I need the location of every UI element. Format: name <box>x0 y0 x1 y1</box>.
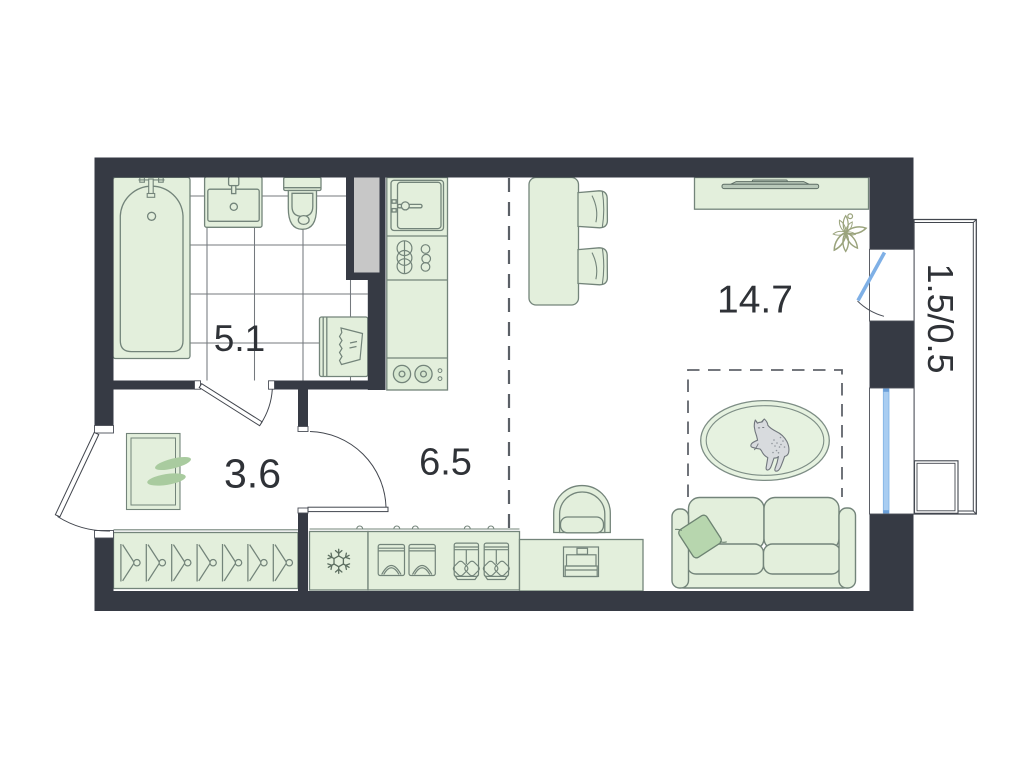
svg-text:3.6: 3.6 <box>224 451 281 497</box>
svg-text:5.1: 5.1 <box>214 318 265 359</box>
svg-text:1.5/0.5: 1.5/0.5 <box>920 263 961 373</box>
svg-text:6.5: 6.5 <box>419 442 472 484</box>
svg-text:14.7: 14.7 <box>717 279 793 322</box>
